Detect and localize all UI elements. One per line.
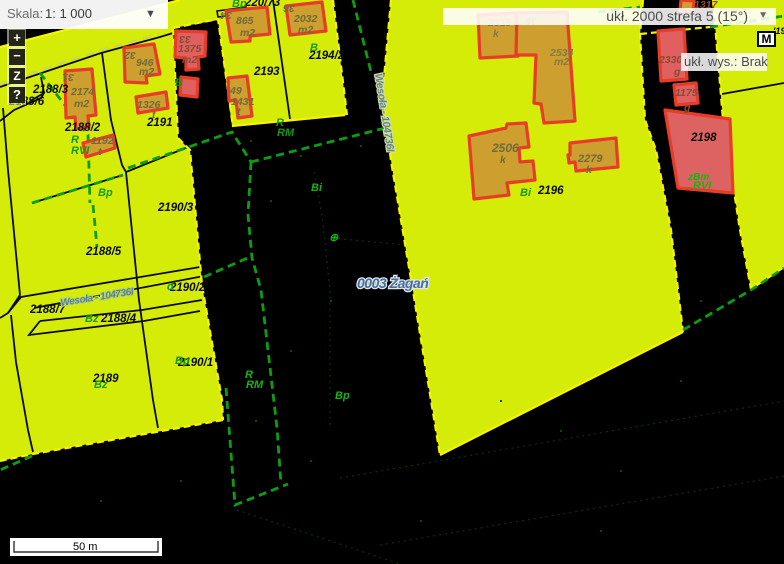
svg-text:m2: m2 [554, 56, 569, 68]
svg-text:⊕: ⊕ [329, 232, 339, 244]
svg-text:32: 32 [124, 49, 136, 61]
svg-text:2188/5: 2188/5 [85, 246, 122, 258]
svg-text:Bz: Bz [94, 379, 108, 391]
svg-text:865: 865 [236, 15, 254, 27]
svg-text:34: 34 [220, 9, 232, 21]
svg-text:B: B [175, 77, 183, 89]
svg-text:2188/4: 2188/4 [100, 313, 137, 325]
svg-text:RVI: RVI [693, 180, 712, 192]
svg-text:RM: RM [246, 379, 264, 391]
svg-text:g: g [673, 66, 681, 78]
svg-text:B: B [310, 42, 318, 54]
svg-text:220/73: 220/73 [244, 0, 281, 9]
svg-text:1326: 1326 [137, 99, 161, 111]
svg-text:2174: 2174 [70, 86, 95, 98]
svg-text:2506: 2506 [491, 141, 519, 155]
svg-text:31: 31 [62, 71, 74, 83]
svg-text:50 m: 50 m [73, 541, 97, 553]
svg-text:Bp: Bp [98, 187, 113, 199]
svg-text:1192: 1192 [91, 135, 114, 147]
svg-text:m2: m2 [139, 66, 154, 78]
svg-text:Bi: Bi [520, 187, 532, 199]
svg-text:Bp: Bp [335, 390, 350, 402]
svg-text:m2: m2 [182, 54, 197, 66]
svg-text:0003 Żagań: 0003 Żagań [357, 275, 428, 291]
svg-text:2188/3: 2188/3 [32, 84, 69, 96]
svg-text:2193: 2193 [253, 66, 280, 78]
svg-text:Bz: Bz [85, 313, 99, 325]
svg-text:2330: 2330 [658, 54, 683, 66]
svg-text:t: t [237, 106, 241, 118]
svg-text:2190/2: 2190/2 [169, 282, 206, 294]
svg-text:m2: m2 [74, 98, 89, 110]
svg-text:g: g [683, 102, 691, 114]
svg-text:RM: RM [277, 127, 295, 139]
svg-text:m2: m2 [298, 24, 313, 36]
svg-text:Bp: Bp [175, 355, 190, 367]
svg-text:RVI: RVI [71, 145, 90, 157]
svg-text:Bi: Bi [311, 182, 323, 194]
svg-text:2196: 2196 [537, 185, 564, 197]
svg-text:2198: 2198 [690, 132, 717, 144]
svg-text:2188/2: 2188/2 [64, 122, 101, 134]
svg-text:1431: 1431 [231, 96, 255, 108]
svg-text:m2: m2 [240, 27, 255, 39]
svg-text:t: t [98, 146, 102, 158]
svg-text:Bp: Bp [232, 0, 247, 10]
svg-text:2191: 2191 [146, 117, 173, 129]
svg-text:1175: 1175 [675, 87, 698, 99]
svg-text:d: d [167, 281, 174, 293]
svg-text:2190/3: 2190/3 [157, 202, 194, 214]
